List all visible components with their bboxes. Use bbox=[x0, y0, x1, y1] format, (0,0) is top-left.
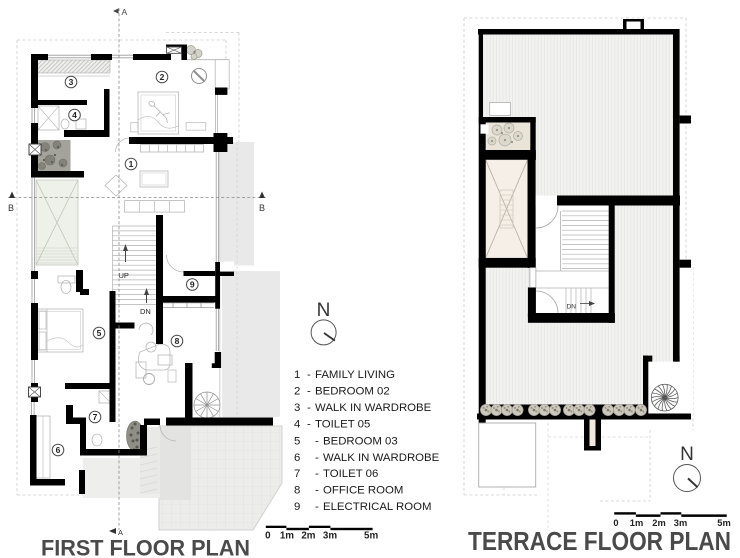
svg-text:UP: UP bbox=[119, 271, 129, 280]
svg-text:DN: DN bbox=[140, 307, 151, 316]
svg-text:-: - bbox=[307, 419, 311, 431]
svg-text:6: 6 bbox=[56, 445, 61, 455]
svg-text:WALK IN WARDROBE: WALK IN WARDROBE bbox=[323, 452, 440, 464]
svg-text:6: 6 bbox=[294, 452, 300, 464]
svg-text:WALK IN WARDROBE: WALK IN WARDROBE bbox=[315, 402, 432, 414]
svg-text:5: 5 bbox=[97, 328, 102, 338]
svg-text:1: 1 bbox=[129, 159, 134, 169]
svg-text:TOILET 05: TOILET 05 bbox=[315, 419, 370, 431]
svg-text:8: 8 bbox=[294, 485, 300, 497]
svg-text:9: 9 bbox=[190, 280, 195, 290]
svg-text:8: 8 bbox=[175, 336, 180, 346]
svg-text:TERRACE FLOOR PLAN: TERRACE FLOOR PLAN bbox=[468, 528, 731, 556]
svg-text:ELECTRICAL ROOM: ELECTRICAL ROOM bbox=[323, 501, 431, 513]
svg-text:FAMILY LIVING: FAMILY LIVING bbox=[315, 369, 395, 381]
svg-text:1m: 1m bbox=[630, 518, 643, 528]
svg-text:5: 5 bbox=[294, 435, 300, 447]
svg-text:-: - bbox=[315, 485, 319, 497]
svg-text:2: 2 bbox=[294, 386, 300, 398]
svg-text:5m: 5m bbox=[364, 530, 378, 541]
svg-text:DN: DN bbox=[567, 304, 577, 311]
svg-text:BEDROOM 03: BEDROOM 03 bbox=[323, 435, 398, 447]
svg-text:BEDROOM 02: BEDROOM 02 bbox=[315, 386, 390, 398]
svg-text:A: A bbox=[122, 7, 128, 17]
svg-text:7: 7 bbox=[93, 412, 98, 422]
svg-text:0: 0 bbox=[265, 530, 271, 541]
svg-text:3m: 3m bbox=[674, 518, 687, 528]
svg-text:4: 4 bbox=[294, 419, 300, 431]
svg-text:7: 7 bbox=[294, 468, 300, 480]
svg-text:3: 3 bbox=[69, 77, 74, 87]
svg-text:-: - bbox=[315, 468, 319, 480]
svg-text:-: - bbox=[315, 501, 319, 513]
svg-text:TOILET 06: TOILET 06 bbox=[323, 468, 378, 480]
svg-text:-: - bbox=[307, 402, 311, 414]
svg-text:3: 3 bbox=[294, 402, 300, 414]
svg-text:4: 4 bbox=[72, 110, 77, 120]
svg-text:0: 0 bbox=[613, 518, 618, 528]
svg-text:2: 2 bbox=[160, 72, 165, 82]
svg-text:B: B bbox=[8, 203, 14, 213]
svg-text:2m: 2m bbox=[301, 530, 315, 541]
svg-text:1m: 1m bbox=[280, 530, 294, 541]
svg-text:3m: 3m bbox=[323, 530, 337, 541]
svg-text:OFFICE ROOM: OFFICE ROOM bbox=[323, 485, 403, 497]
svg-text:-: - bbox=[307, 369, 311, 381]
svg-text:-: - bbox=[315, 435, 319, 447]
svg-text:-: - bbox=[315, 452, 319, 464]
svg-text:N: N bbox=[680, 444, 694, 465]
svg-text:9: 9 bbox=[294, 501, 300, 513]
svg-text:5m: 5m bbox=[717, 518, 730, 528]
svg-text:2m: 2m bbox=[652, 518, 665, 528]
svg-text:1: 1 bbox=[294, 369, 300, 381]
svg-text:B: B bbox=[259, 203, 265, 213]
svg-text:-: - bbox=[307, 386, 311, 398]
svg-text:N: N bbox=[317, 300, 331, 321]
svg-text:FIRST FLOOR PLAN: FIRST FLOOR PLAN bbox=[41, 535, 250, 558]
